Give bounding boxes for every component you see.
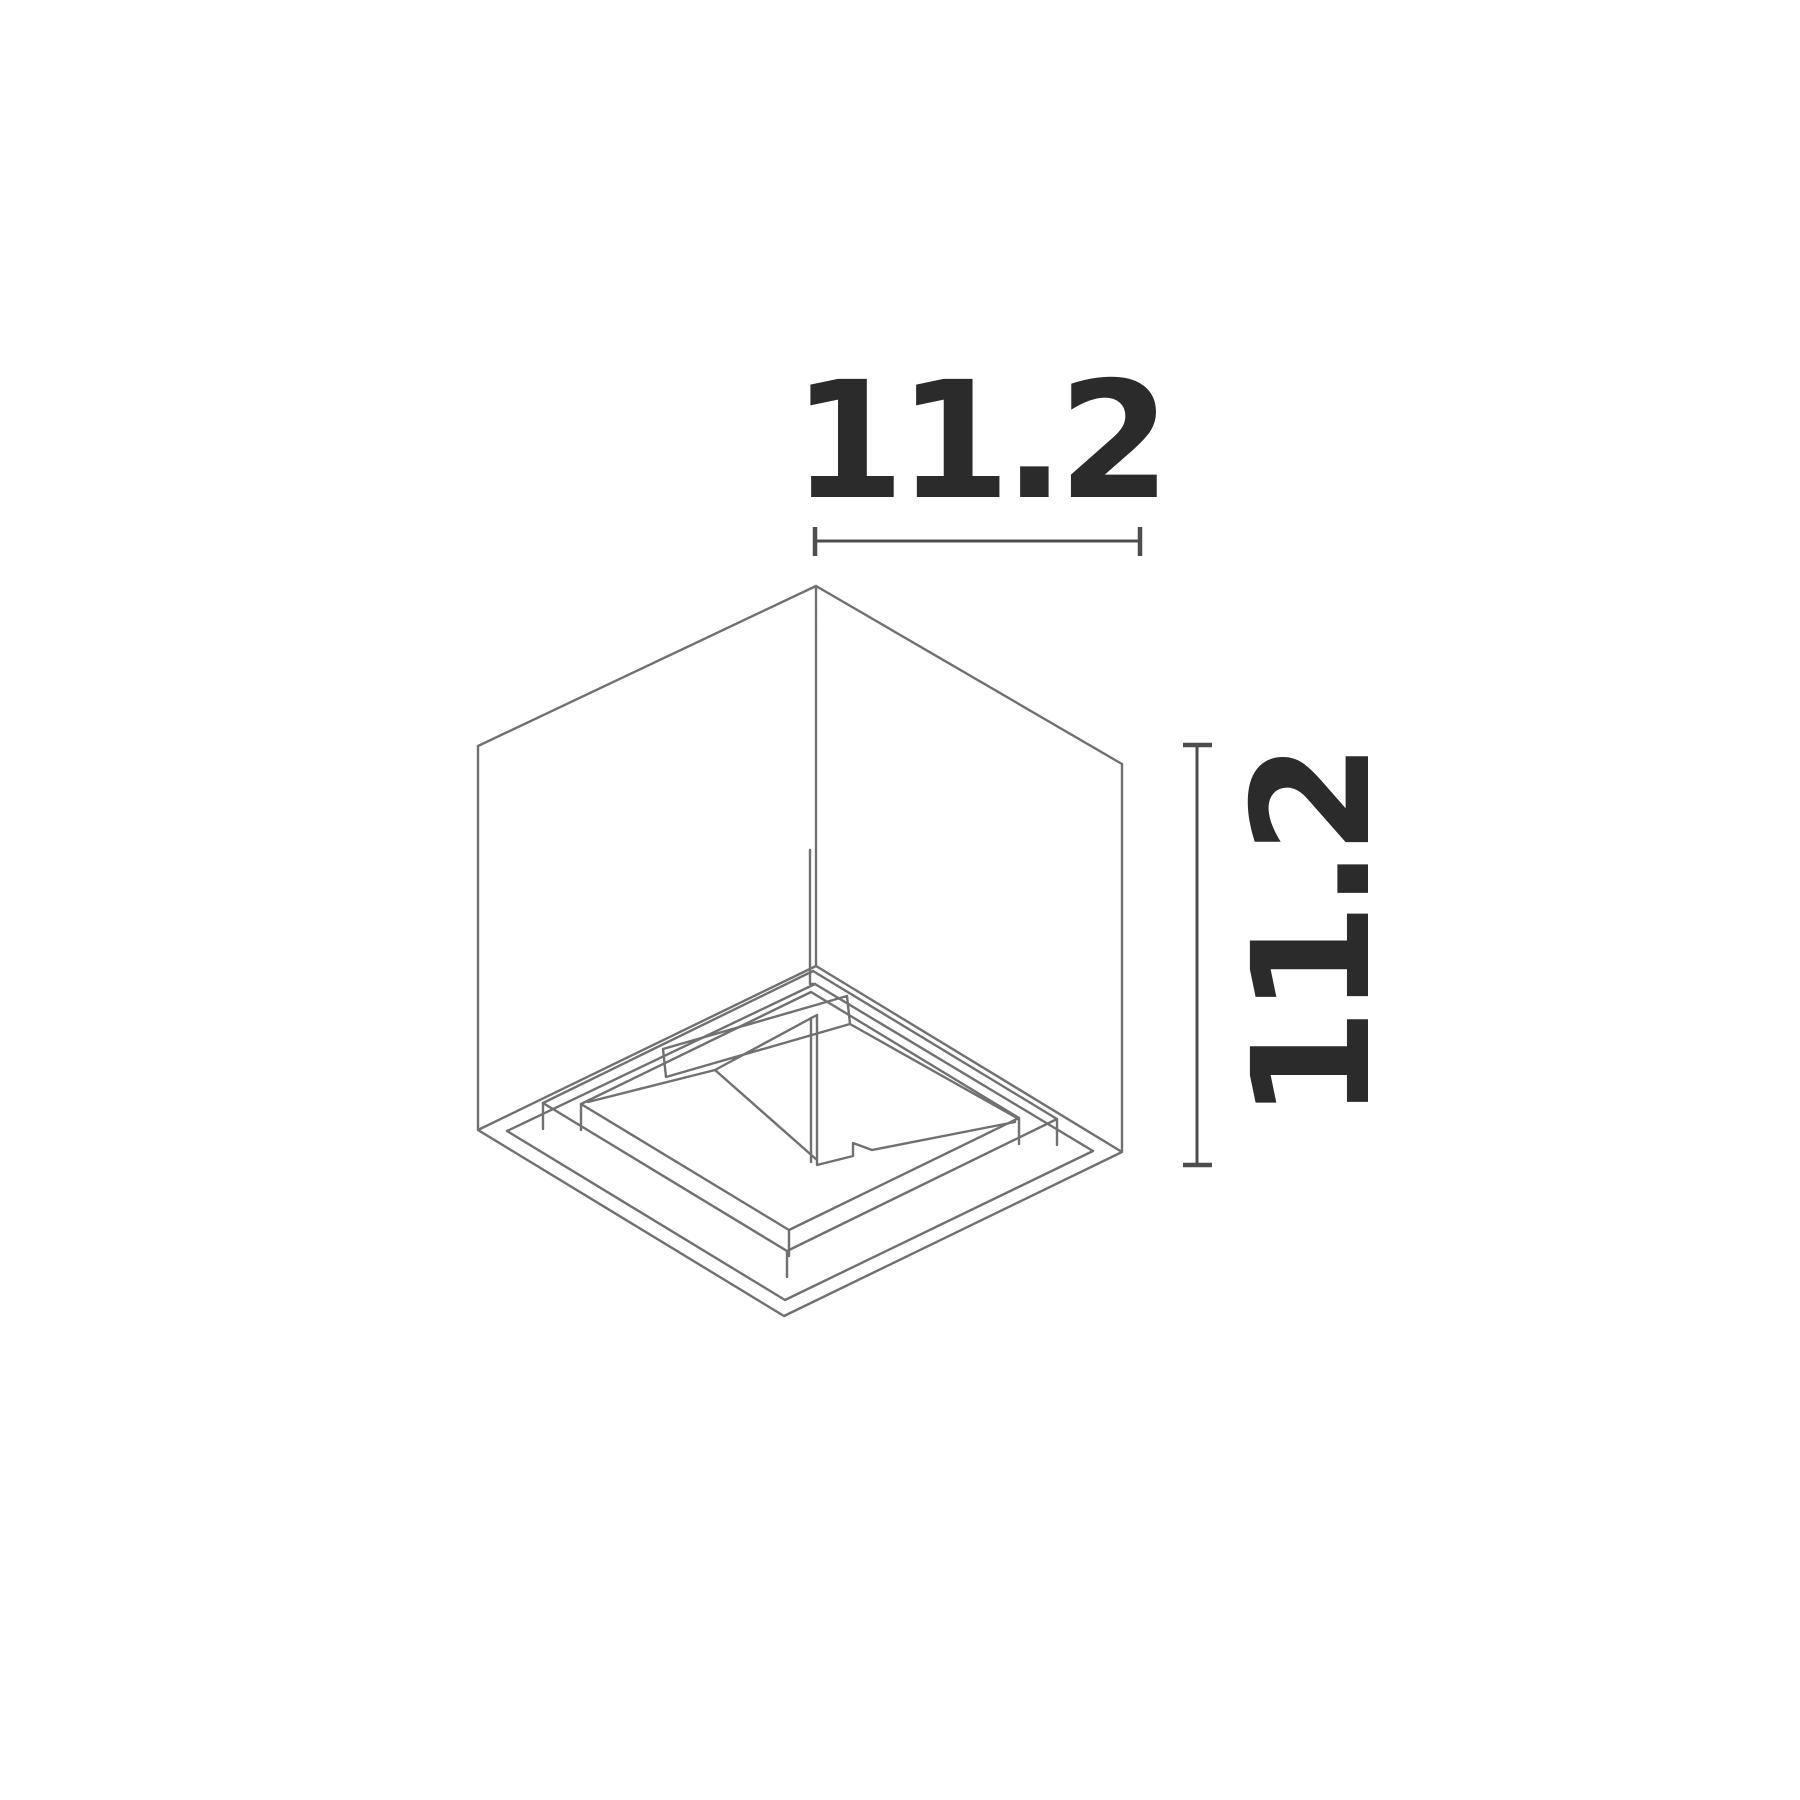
width-dimension-label: 11.2 (792, 348, 1164, 536)
height-dimension: 11.2 (1183, 745, 1407, 1165)
inner-rim (507, 850, 1093, 1300)
technical-drawing-page: 11.2 11.2 (0, 0, 1800, 1800)
cube-fixture-drawing: 11.2 11.2 (0, 0, 1800, 1800)
height-dimension-label: 11.2 (1219, 749, 1407, 1121)
cube-outline (478, 586, 1122, 1316)
width-dimension: 11.2 (792, 348, 1164, 556)
product-wireframe (478, 586, 1122, 1316)
aperture-ring (543, 971, 1057, 1277)
baffle-plate (588, 996, 1017, 1165)
